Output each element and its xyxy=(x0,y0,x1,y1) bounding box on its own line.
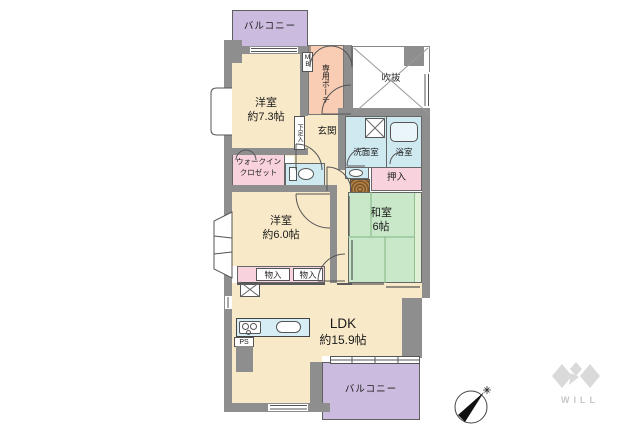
storage-right: 物入 xyxy=(293,268,323,281)
wall-bedroom2-right xyxy=(330,192,337,283)
storage-left: 物入 xyxy=(256,268,290,281)
window-void-right xyxy=(423,72,431,108)
floorplan-canvas: バルコニー バルコニー 専用ポーチ 吹抜 洗面室 浴室 押入 和室 6帖 ウォー… xyxy=(0,0,640,427)
wic-label-line2: クロゼット xyxy=(232,168,285,179)
washitsu-name: 和室 xyxy=(348,206,414,220)
wic-label-line1: ウォークイン xyxy=(232,157,285,168)
wall-void-corner xyxy=(404,46,424,66)
bedroom-7-3-name: 洋室 xyxy=(232,96,300,110)
will-logo-icon xyxy=(548,358,612,394)
void-label: 吹抜 xyxy=(352,73,430,85)
bedroom-7-3-label: 洋室 約7.3帖 xyxy=(232,96,300,125)
wall-entrance-washroom xyxy=(338,116,345,170)
wall-ldk-right-chunk xyxy=(402,298,422,358)
window-ldk-bottom xyxy=(268,404,308,411)
tatami-edge-strip xyxy=(414,193,421,282)
wic-label: ウォークイン クロゼット xyxy=(232,157,285,178)
balcony-bottom-label: バルコニー xyxy=(322,384,420,396)
compass-star xyxy=(483,386,491,394)
wall-left xyxy=(224,40,232,410)
toilet-bowl-icon xyxy=(298,168,314,180)
wall-washrow-top xyxy=(338,108,430,116)
logo-diamond-left xyxy=(552,364,572,388)
wall-corridor-ldk xyxy=(337,283,352,285)
wall-kitchen-pillar xyxy=(236,346,253,372)
wall-porch-void xyxy=(344,45,352,115)
sliding-window-balcony xyxy=(330,356,420,364)
washbasin-icon xyxy=(349,169,363,177)
toilet-tank-icon xyxy=(289,167,297,181)
wall-right xyxy=(422,108,430,298)
bedroom-6-0-size: 約6.0帖 xyxy=(232,228,330,242)
private-porch-label: 専用ポーチ xyxy=(320,56,330,112)
wall-balcony-left xyxy=(310,362,322,412)
burner-icon xyxy=(242,323,249,330)
bedroom-6-0-label: 洋室 約6.0帖 xyxy=(232,214,330,243)
washroom-label: 洗面室 xyxy=(345,147,387,158)
wall-storage-bottom xyxy=(237,283,325,285)
washer-pan-icon xyxy=(365,118,385,138)
burner-icon xyxy=(250,323,257,330)
bathtub-icon xyxy=(390,122,418,142)
will-logo-text: WILL xyxy=(548,395,612,405)
bathroom-label: 浴室 xyxy=(386,147,422,158)
ldk-size: 約15.9帖 xyxy=(283,333,403,349)
ldk-label: LDK 約15.9帖 xyxy=(283,315,403,348)
wall-midrow-bottom xyxy=(224,185,337,192)
window-ldk-left xyxy=(225,296,232,309)
bedroom-6-0-name: 洋室 xyxy=(232,214,330,228)
washitsu-label: 和室 6帖 xyxy=(348,206,414,235)
balcony-top-label: バルコニー xyxy=(232,21,308,33)
window-top xyxy=(250,47,298,53)
washitsu-size: 6帖 xyxy=(348,220,414,234)
entrance-label: 玄関 xyxy=(306,126,348,138)
logo-diamond-right xyxy=(580,364,600,388)
compass-needle xyxy=(458,392,484,422)
meter-box-label: MB xyxy=(302,52,313,72)
oshiire-label: 押入 xyxy=(371,172,422,184)
bedroom-7-3-size: 約7.3帖 xyxy=(232,110,300,124)
ldk-name: LDK xyxy=(283,315,403,333)
burner-icon xyxy=(246,330,251,335)
compass-icon xyxy=(450,384,496,426)
